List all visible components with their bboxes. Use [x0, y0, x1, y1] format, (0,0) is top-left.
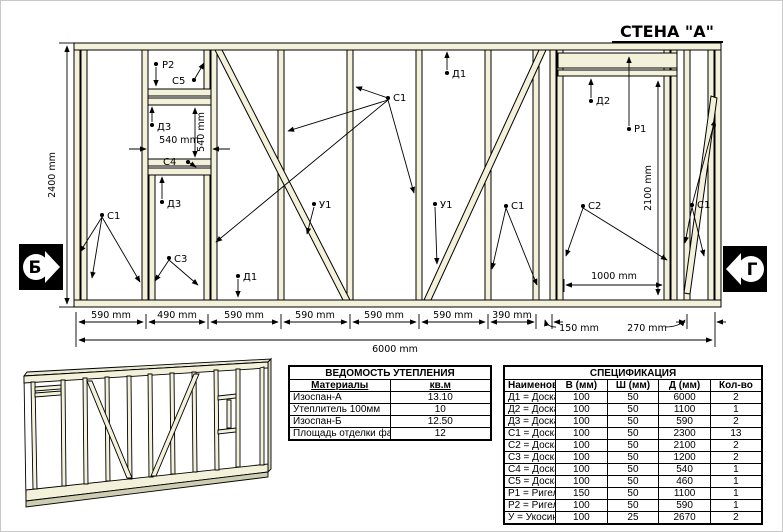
door-jamb-stud [664, 50, 670, 300]
spec-col-width: Ш (мм) [607, 380, 659, 392]
part-length: 1200 [659, 452, 711, 464]
part-height: 100 [556, 404, 608, 416]
part-label: С1 [511, 201, 524, 212]
window-board [148, 98, 211, 105]
spec-table-header-row: Наименование В (мм) Ш (мм) Д (мм) Кол-во [504, 380, 762, 392]
part-length: 590 [659, 500, 711, 512]
part-height: 100 [556, 416, 608, 428]
part-qty: 2 [710, 452, 762, 464]
part-width: 50 [607, 488, 659, 500]
section-marker-g-letter: Г [747, 260, 758, 280]
part-height: 100 [556, 428, 608, 440]
part-height: 100 [556, 500, 608, 512]
material-name: Изоспан-Б [289, 416, 390, 428]
short-stud-c5 [204, 50, 210, 89]
material-name: Изоспан-А [289, 392, 390, 404]
wall-elevation-drawing: СТЕНА "А" [1, 1, 783, 361]
part-qty: 2 [710, 392, 762, 404]
stud [715, 50, 721, 300]
part-width: 50 [607, 440, 659, 452]
part-height: 150 [556, 488, 608, 500]
part-qty: 1 [710, 404, 762, 416]
part-name: Р2 = Ригель [504, 500, 556, 512]
insulation-col-materials: Материалы [311, 380, 368, 391]
3d-window-stud [227, 400, 231, 428]
window-trimmer [149, 175, 155, 300]
3d-stud [214, 370, 219, 470]
window-trimmer [204, 175, 210, 300]
table-row: Д1 = Доска хвоя А-Б 100 50 6000 2 [504, 392, 762, 404]
stud [708, 50, 714, 300]
segment-dim: 490 mm [157, 310, 197, 321]
part-height: 100 [556, 476, 608, 488]
table-row: Площадь отделки фасада 12 [289, 428, 491, 441]
part-length: 2670 [659, 512, 711, 525]
stud [74, 50, 80, 300]
stud [533, 50, 539, 300]
part-label: Д3 [167, 199, 181, 210]
table-row: У = Укосина хвоя А-Б 100 25 2670 2 [504, 512, 762, 525]
insulation-table: ВЕДОМОСТЬ УТЕПЛЕНИЯ Материалы кв.м Изосп… [288, 365, 492, 441]
segment-dim: 590 mm [91, 310, 131, 321]
part-label: С2 [588, 201, 601, 212]
part-width: 50 [607, 452, 659, 464]
3d-stud [83, 378, 88, 484]
spec-col-qty: Кол-во [710, 380, 762, 392]
part-height: 100 [556, 452, 608, 464]
part-name: С2 = Доска хвоя А-Б [504, 440, 556, 452]
spec-table-title: СПЕЦИФИКАЦИЯ [504, 366, 762, 380]
spec-col-length: Д (мм) [659, 380, 711, 392]
table-row: Изоспан-А 13.10 [289, 392, 491, 404]
part-label: С4 [163, 157, 176, 168]
part-width: 50 [607, 476, 659, 488]
spec-table-title-row: СПЕЦИФИКАЦИЯ [504, 366, 762, 380]
part-name: Д3 = Доска хвоя А-Б [504, 416, 556, 428]
part-label: С1 [107, 211, 120, 222]
part-label: С1 [697, 200, 710, 211]
bottom-plate [74, 300, 721, 307]
section-marker-b-letter: Б [29, 258, 42, 278]
part-qty: 1 [710, 488, 762, 500]
material-value: 12.50 [390, 416, 491, 428]
material-name: Площадь отделки фасада [289, 428, 390, 441]
table-row: С4 = Доска хвоя А-Б 100 50 540 1 [504, 464, 762, 476]
insulation-table-title-row: ВЕДОМОСТЬ УТЕПЛЕНИЯ [289, 366, 491, 380]
door-width-dim: 1000 mm [591, 271, 637, 282]
table-row: С3 = Доска хвоя А-Б 100 50 1200 2 [504, 452, 762, 464]
door-jamb-stud [557, 50, 563, 300]
door-header [558, 53, 677, 68]
part-label: Р2 [162, 60, 174, 71]
insulation-table-header-row: Материалы кв.м [289, 380, 491, 392]
part-width: 50 [607, 416, 659, 428]
part-label: Д2 [596, 96, 610, 107]
segment-dim: 150 mm [559, 323, 599, 334]
part-label: У1 [319, 200, 331, 211]
segment-dim: 590 mm [295, 310, 335, 321]
table-row: Р2 = Ригель 100 50 590 1 [504, 500, 762, 512]
3d-stud [148, 374, 153, 477]
part-qty: 1 [710, 476, 762, 488]
part-qty: 1 [710, 464, 762, 476]
part-height: 100 [556, 392, 608, 404]
part-label: Д1 [452, 69, 466, 80]
part-height: 100 [556, 512, 608, 525]
part-label: С5 [172, 76, 185, 87]
table-row: Р1 = Ригель 150 50 1100 1 [504, 488, 762, 500]
part-length: 1100 [659, 488, 711, 500]
specification-table: СПЕЦИФИКАЦИЯ Наименование В (мм) Ш (мм) … [503, 365, 763, 525]
table-row: С1 = Доска хвоя А-Б 100 50 2300 13 [504, 428, 762, 440]
table-row: С2 = Доска хвоя А-Б 100 50 2100 2 [504, 440, 762, 452]
segment-dim: 590 mm [433, 310, 473, 321]
material-value: 12 [390, 428, 491, 441]
part-height: 100 [556, 440, 608, 452]
door-jamb-stud [550, 50, 556, 300]
3d-stud [127, 376, 132, 479]
part-label: Д1 [243, 272, 257, 283]
table-row: Д3 = Доска хвоя А-Б 100 50 590 2 [504, 416, 762, 428]
drawing-sheet: СТЕНА "А" [0, 0, 783, 532]
door-jamb-stud [671, 50, 677, 300]
part-name: С5 = Доска хвоя А-Б [504, 476, 556, 488]
material-name: Утеплитель 100мм [289, 404, 390, 416]
part-label: Д3 [157, 122, 171, 133]
part-width: 50 [607, 392, 659, 404]
window-width-dim: 540 mm [159, 135, 199, 146]
section-marker-g: Г [723, 246, 767, 292]
part-length: 6000 [659, 392, 711, 404]
part-qty: 2 [710, 440, 762, 452]
table-row: Изоспан-Б 12.50 [289, 416, 491, 428]
window-board [148, 168, 211, 175]
spec-col-name: Наименование [504, 380, 556, 392]
part-length: 460 [659, 476, 711, 488]
part-qty: 2 [710, 512, 762, 525]
part-name: У = Укосина хвоя А-Б [504, 512, 556, 525]
window-sill-board [148, 159, 211, 166]
3d-stud [61, 380, 66, 486]
part-name: С1 = Доска хвоя А-Б [504, 428, 556, 440]
table-row: Утеплитель 100мм 10 [289, 404, 491, 416]
insulation-col-sqm: кв.м [430, 380, 451, 391]
window-header-board [148, 89, 211, 96]
wall-height-dim: 2400 mm [47, 152, 58, 198]
sheet-title: СТЕНА "А" [620, 22, 714, 41]
stud [142, 50, 148, 300]
part-label: С1 [393, 93, 406, 104]
part-name: С3 = Доска хвоя А-Б [504, 452, 556, 464]
part-name: С4 = Доска хвоя А-Б [504, 464, 556, 476]
table-row: С5 = Доска хвоя А-Б 100 50 460 1 [504, 476, 762, 488]
part-name: Р1 = Ригель [504, 488, 556, 500]
part-length: 2300 [659, 428, 711, 440]
segment-dim: 270 mm [627, 323, 667, 334]
wall-length-dim: 6000 mm [372, 344, 418, 355]
part-width: 50 [607, 500, 659, 512]
3d-stud [260, 367, 264, 465]
part-length: 540 [659, 464, 711, 476]
part-label: Р1 [634, 124, 646, 135]
part-name: Д2 = Доска хвоя А-Б [504, 404, 556, 416]
stud [211, 50, 217, 300]
part-height: 100 [556, 464, 608, 476]
part-qty: 2 [710, 416, 762, 428]
part-width: 50 [607, 464, 659, 476]
spec-col-height: В (мм) [556, 380, 608, 392]
part-length: 2100 [659, 440, 711, 452]
part-label: С3 [174, 254, 187, 265]
3d-stud [236, 369, 240, 467]
insulation-table-title: ВЕДОМОСТЬ УТЕПЛЕНИЯ [289, 366, 491, 380]
part-width: 25 [607, 512, 659, 525]
segment-dim: 590 mm [224, 310, 264, 321]
window-height-dim: 540 mm [196, 112, 207, 152]
segment-dim: 590 mm [364, 310, 404, 321]
material-value: 10 [390, 404, 491, 416]
part-name: Д1 = Доска хвоя А-Б [504, 392, 556, 404]
part-width: 50 [607, 428, 659, 440]
stud [81, 50, 87, 300]
part-width: 50 [607, 404, 659, 416]
material-value: 13.10 [390, 392, 491, 404]
part-label: У1 [440, 200, 452, 211]
part-qty: 13 [710, 428, 762, 440]
door-header-board [558, 70, 677, 76]
stud [347, 50, 353, 300]
section-marker-b: Б [19, 244, 63, 290]
wall-3d-view [9, 351, 291, 532]
part-length: 1100 [659, 404, 711, 416]
part-length: 590 [659, 416, 711, 428]
segment-dim: 390 mm [492, 310, 532, 321]
table-row: Д2 = Доска хвоя А-Б 100 50 1100 1 [504, 404, 762, 416]
stud [416, 50, 422, 300]
door-height-dim: 2100 mm [643, 165, 654, 211]
top-plate [74, 43, 721, 50]
part-qty: 1 [710, 500, 762, 512]
